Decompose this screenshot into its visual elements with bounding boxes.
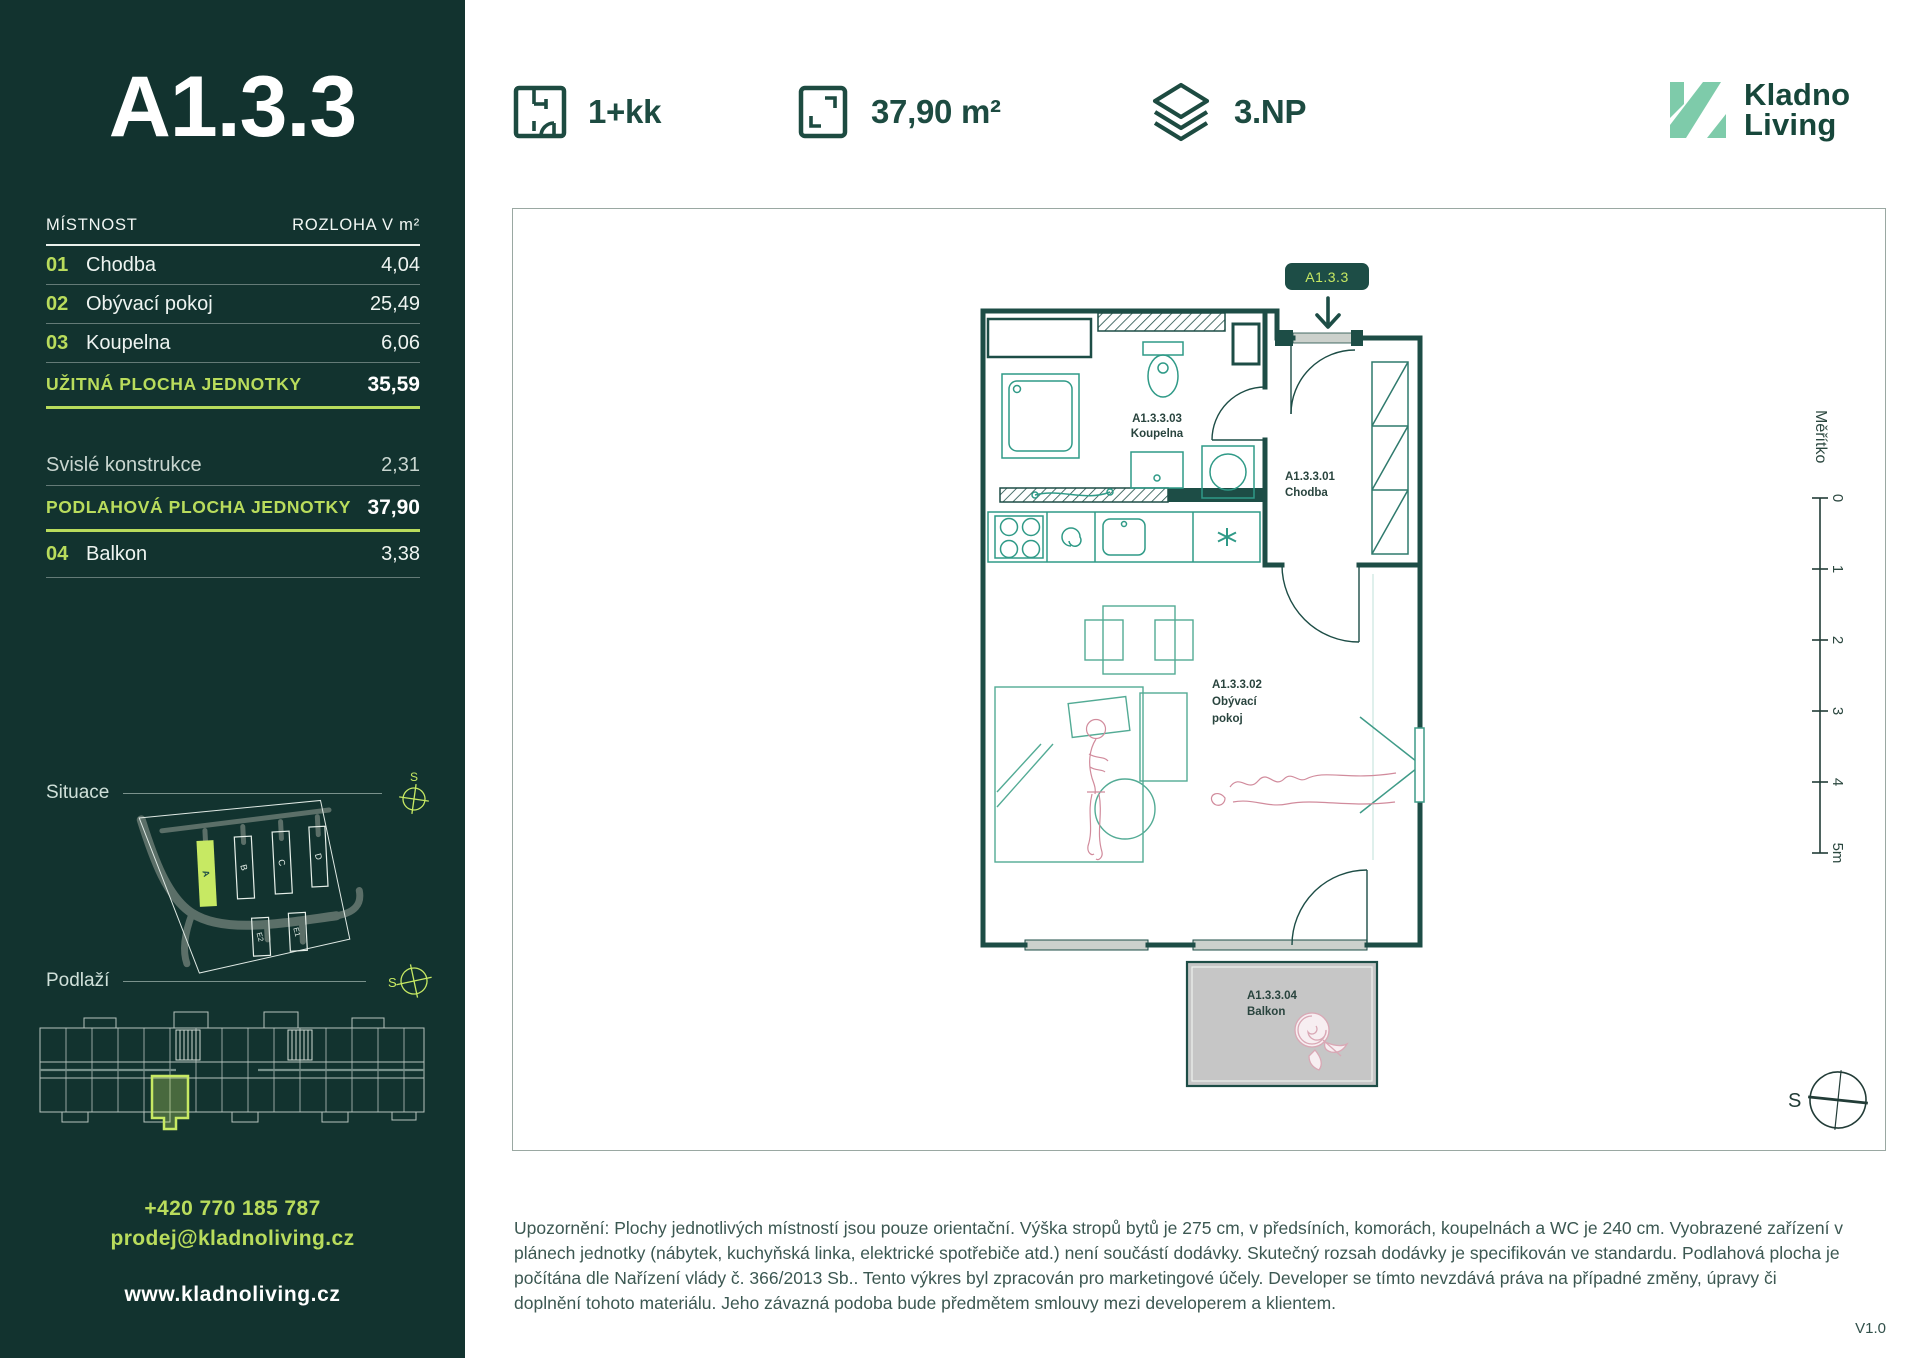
row-value: 6,06 (381, 332, 420, 355)
svg-text:pokoj: pokoj (1212, 713, 1243, 725)
room-table: MÍSTNOST ROZLOHA V m² 01 Chodba 4,04 02 … (46, 212, 420, 578)
row-name: Koupelna (86, 332, 381, 355)
window-sills (1025, 333, 1367, 950)
podlazi-label: Podlaží (46, 970, 109, 992)
contact-block: +420 770 185 787 prodej@kladnoliving.cz … (0, 1194, 465, 1307)
plan-compass-icon: S (1778, 1062, 1878, 1138)
floorplan-icon (512, 84, 568, 140)
kitchen-counter (988, 512, 1260, 562)
col-area: ROZLOHA V m² (292, 216, 420, 235)
brand-logo: Kladno Living (1670, 80, 1850, 141)
svg-text:B: B (238, 863, 249, 871)
version-label: V1.0 (1820, 1320, 1886, 1337)
disclaimer-text: Upozornění: Plochy jednotlivých místnost… (514, 1216, 1848, 1315)
row-value: 4,04 (381, 254, 420, 277)
row-num: 01 (46, 254, 86, 277)
podlazi-header: Podlaží S (46, 962, 432, 1000)
vertical-structures-row: Svislé konstrukce 2,31 (46, 446, 420, 486)
svg-text:2: 2 (1829, 636, 1846, 644)
table-row: 01 Chodba 4,04 (46, 246, 420, 285)
svg-text:D: D (313, 852, 324, 861)
vertical-structures-value: 2,31 (381, 454, 420, 477)
svg-text:E2: E2 (255, 931, 266, 942)
svg-text:0: 0 (1829, 494, 1846, 502)
usable-area-row: UŽITNÁ PLOCHA JEDNOTKY 35,59 (46, 363, 420, 409)
row-num: 02 (46, 293, 86, 316)
row-name: Obývací pokoj (86, 293, 370, 316)
spec-layout-label: 1+kk (588, 93, 661, 131)
divider (123, 981, 366, 982)
compass-icon: S (380, 962, 432, 1000)
svg-text:Měřítko: Měřítko (1812, 410, 1829, 463)
brand-logo-text: Kladno Living (1744, 80, 1850, 141)
svg-text:S: S (388, 975, 397, 990)
site-map: A B C D E2 E1 (95, 798, 415, 978)
door-swings (1212, 342, 1367, 945)
spec-area: 37,90 m² (795, 80, 1001, 144)
floor-schematic (26, 998, 438, 1148)
sidebar: A1.3.3 MÍSTNOST ROZLOHA V m² 01 Chodba 4… (0, 0, 465, 1358)
table-row: 03 Koupelna 6,06 (46, 324, 420, 363)
buildings-outline (234, 826, 331, 957)
floor-area-row: PODLAHOVÁ PLOCHA JEDNOTKY 37,90 (46, 486, 420, 532)
site-roads (141, 809, 363, 966)
row-name: Chodba (86, 254, 381, 277)
wardrobe (1372, 362, 1408, 554)
row-num: 04 (46, 543, 86, 566)
col-room: MÍSTNOST (46, 216, 138, 235)
row-name: Balkon (86, 543, 381, 566)
unit-title: A1.3.3 (0, 58, 465, 157)
highlighted-unit (152, 1076, 188, 1129)
spec-area-label: 37,90 m² (871, 93, 1001, 131)
svg-text:S: S (410, 770, 418, 784)
room-labels: A1.3.3.03 Koupelna A1.3.3.01 Chodba A1.3… (1131, 413, 1336, 1018)
svg-text:5m: 5m (1829, 843, 1846, 864)
contact-email[interactable]: prodej@kladnoliving.cz (0, 1224, 465, 1254)
svg-text:A1.3.3.03: A1.3.3.03 (1132, 413, 1182, 425)
row-value: 3,38 (381, 543, 420, 566)
area-icon (795, 84, 851, 140)
window-arrow (1360, 717, 1424, 813)
spec-floor: 3.NP (1148, 80, 1306, 144)
floorplan-drawing: A1.3.3.03 Koupelna A1.3.3.01 Chodba A1.3… (975, 262, 1435, 1097)
svg-text:4: 4 (1829, 778, 1846, 786)
floor-area-value: 37,90 (367, 496, 420, 520)
svg-text:A1.3.3.04: A1.3.3.04 (1247, 990, 1297, 1002)
svg-text:3: 3 (1829, 707, 1846, 715)
svg-text:1: 1 (1829, 565, 1846, 573)
floor-area-label: PODLAHOVÁ PLOCHA JEDNOTKY (46, 497, 367, 518)
floor-icon (1148, 81, 1214, 143)
balcony-row: 04 Balkon 3,38 (46, 532, 420, 578)
svg-text:Koupelna: Koupelna (1131, 428, 1184, 440)
usable-area-label: UŽITNÁ PLOCHA JEDNOTKY (46, 374, 367, 395)
usable-area-value: 35,59 (367, 373, 420, 397)
person-sketch (1087, 720, 1109, 860)
spec-layout: 1+kk (512, 80, 661, 144)
contact-phone[interactable]: +420 770 185 787 (0, 1194, 465, 1224)
living-furniture (995, 574, 1373, 862)
svg-text:Chodba: Chodba (1285, 487, 1328, 499)
spec-floor-label: 3.NP (1234, 93, 1306, 131)
svg-text:Balkon: Balkon (1247, 1006, 1285, 1018)
dog-sketch (1211, 773, 1396, 805)
divider (123, 793, 382, 794)
row-value: 25,49 (370, 293, 420, 316)
scale-ticks: 0 1 2 3 4 5m (1829, 494, 1846, 864)
contact-web[interactable]: www.kladnoliving.cz (0, 1283, 465, 1307)
table-row: 02 Obývací pokoj 25,49 (46, 285, 420, 324)
svg-text:A1.3.3.02: A1.3.3.02 (1212, 679, 1262, 691)
row-num: 03 (46, 332, 86, 355)
balcony (1187, 962, 1377, 1086)
svg-text:Obývací: Obývací (1212, 696, 1258, 708)
scale-bar: Měřítko 0 1 2 3 4 5m (1790, 400, 1870, 880)
svg-text:A1.3.3.01: A1.3.3.01 (1285, 471, 1335, 483)
svg-text:S: S (1788, 1090, 1801, 1112)
vertical-structures-label: Svislé konstrukce (46, 454, 381, 477)
svg-text:C: C (276, 858, 287, 867)
walls (983, 311, 1420, 945)
table-header: MÍSTNOST ROZLOHA V m² (46, 212, 420, 246)
kladno-living-logo-icon (1670, 82, 1726, 138)
